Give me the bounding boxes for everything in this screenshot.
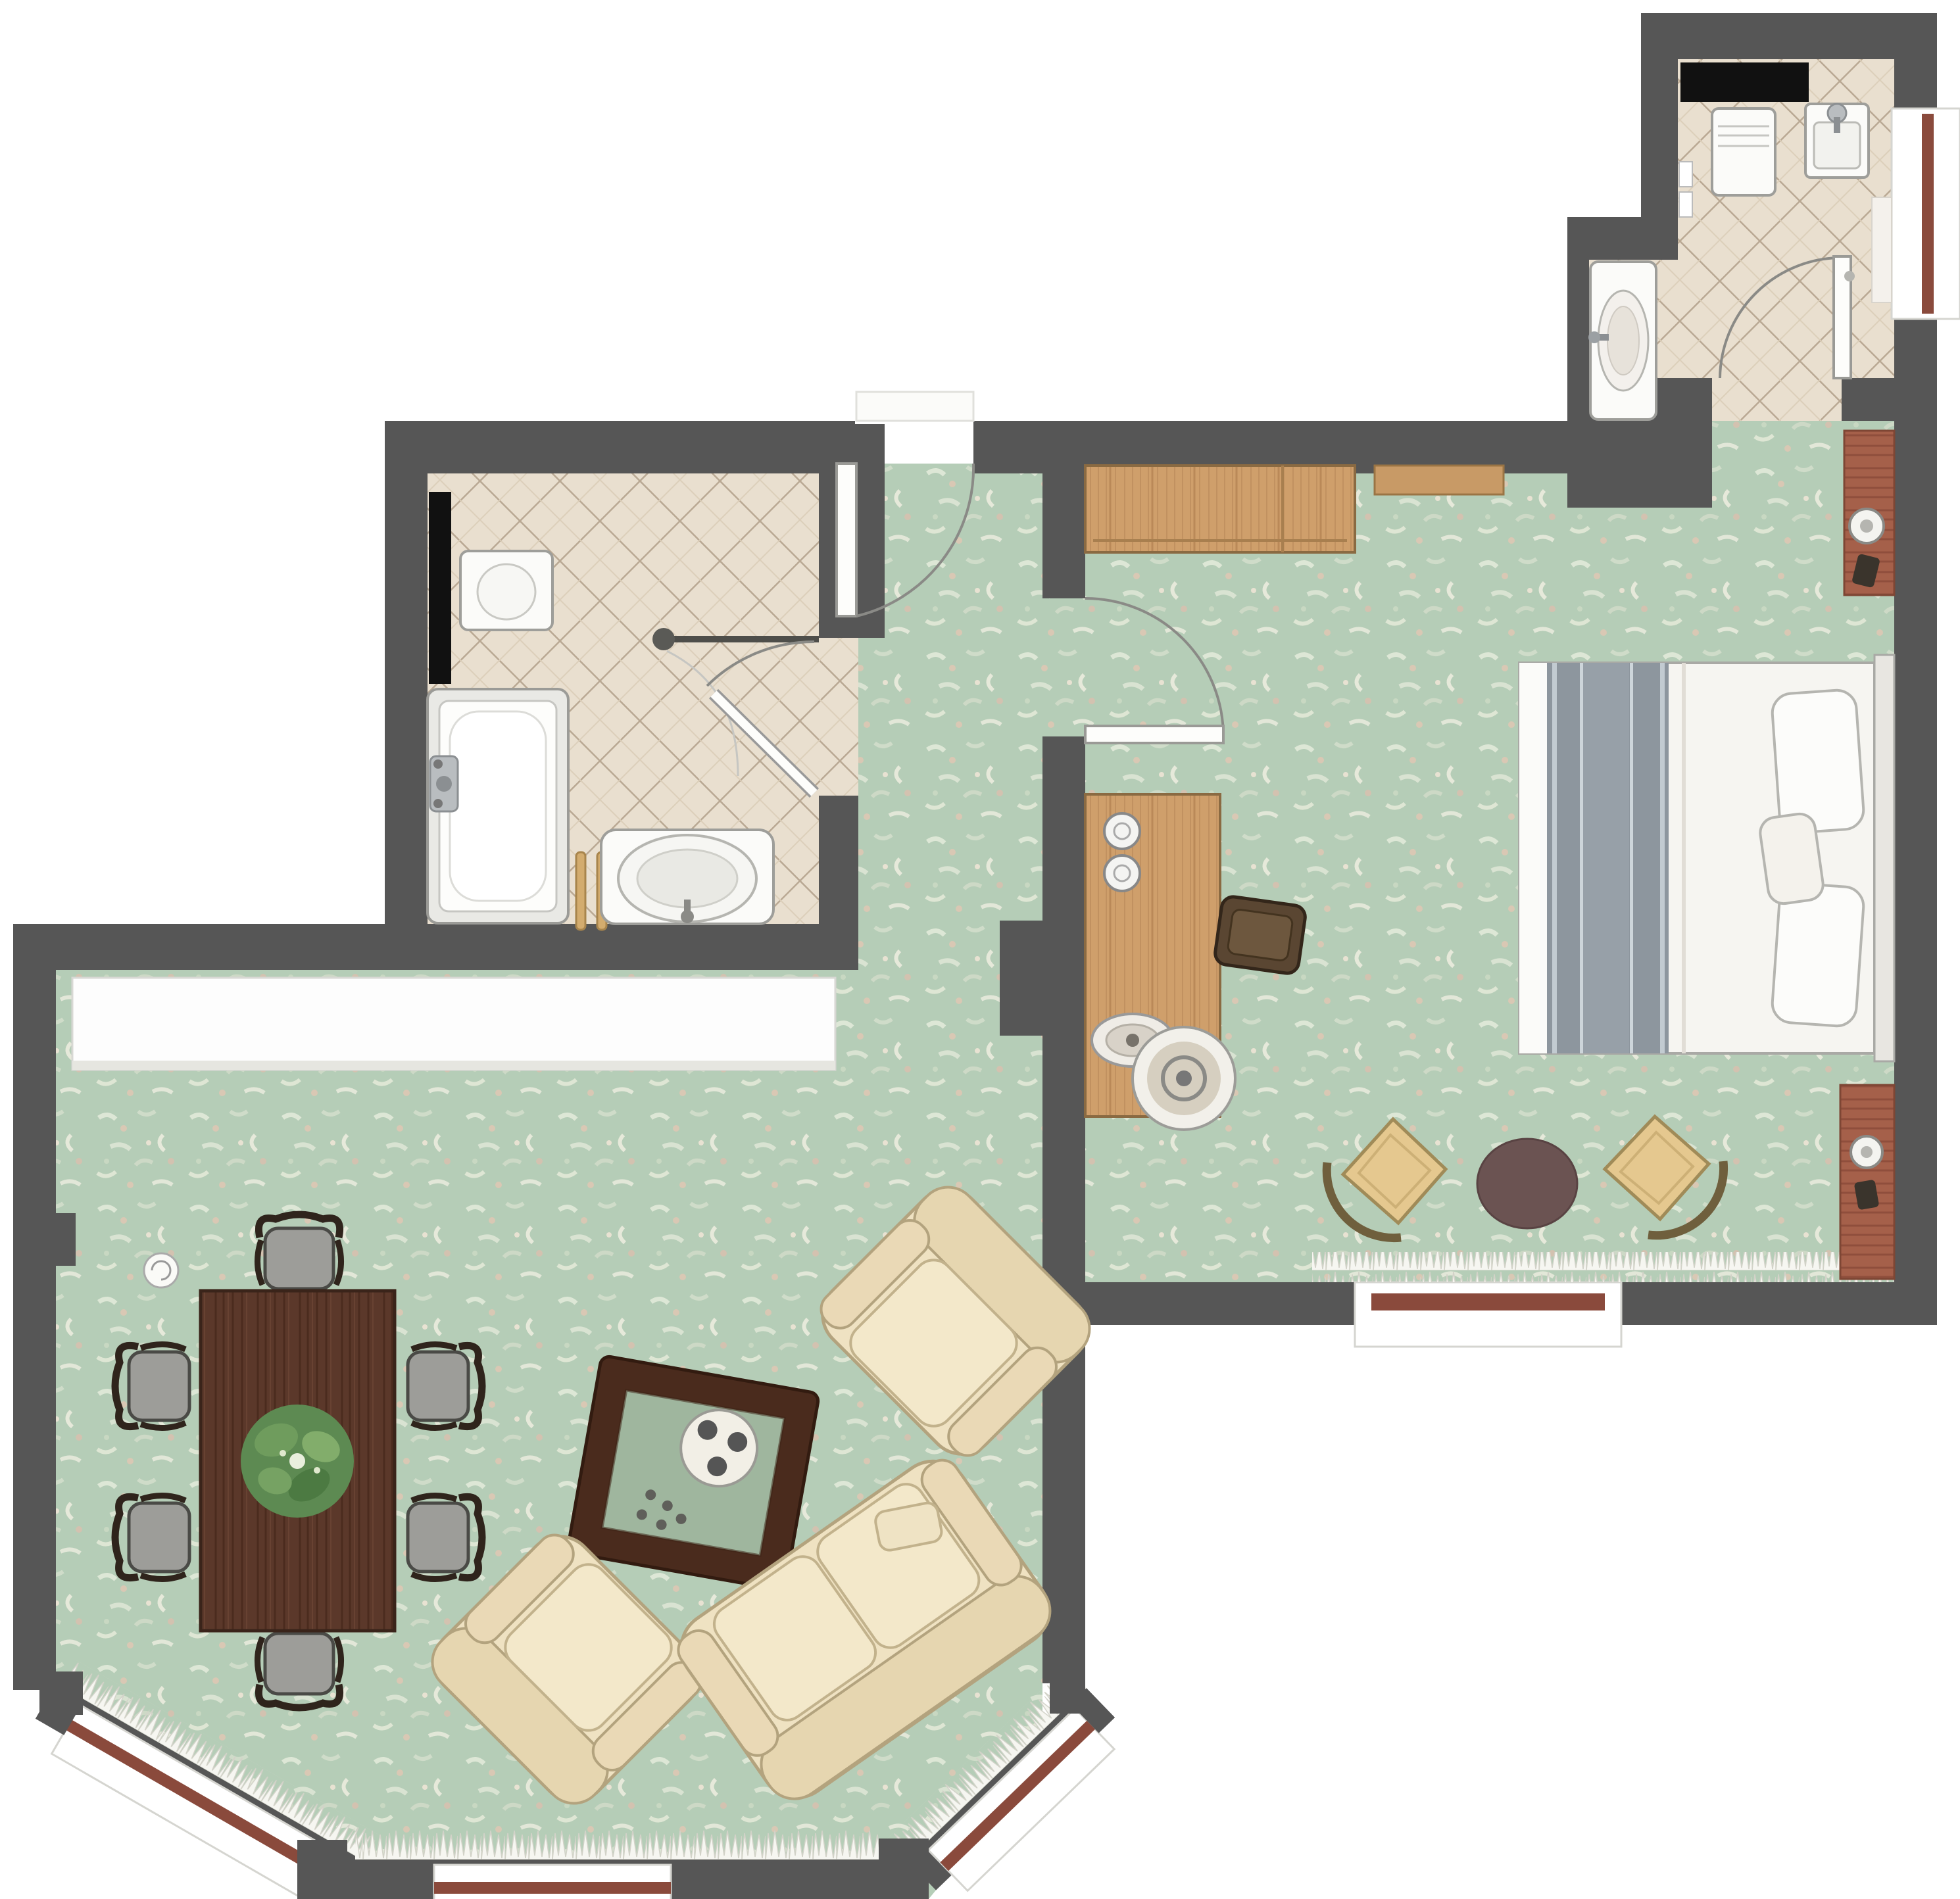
corner-table: [1840, 1085, 1894, 1279]
wardrobe: [1085, 466, 1355, 552]
ensuite-toilet-bidet: [1712, 108, 1775, 195]
ensuite-sink-square: [1805, 104, 1869, 178]
floor-medallion: [144, 1253, 178, 1287]
wall-right: [1894, 319, 1937, 1325]
wall-ensuite-jog: [1567, 217, 1678, 260]
wall-left-pilaster: [56, 1213, 76, 1266]
bedroom-curtain-fringe: [1312, 1252, 1894, 1282]
floor-plan-page: Hotel suite floor plan – top-down view: [0, 0, 1960, 1899]
toilet: [460, 551, 552, 630]
ensuite-black-counter: [1680, 62, 1809, 102]
floor-service-tray: [1133, 1027, 1235, 1130]
bathtub-faucet: [430, 756, 458, 811]
wall-ensuite-top: [1641, 13, 1937, 59]
floor-plan-canvas: Hotel suite floor plan – top-down view: [0, 0, 1960, 1899]
shower-head-icon: [652, 628, 675, 650]
bed-runner: [1547, 663, 1669, 1053]
nightstand: [1844, 431, 1894, 595]
ensuite-floor-doorway: [1712, 378, 1842, 421]
round-side-table: [1477, 1139, 1577, 1228]
headboard: [1874, 655, 1894, 1061]
wall-bathroom-left: [385, 424, 428, 970]
ensuite-window: [1892, 108, 1960, 319]
wall-bedroom-bottom-right: [1605, 1282, 1894, 1325]
bed: [1519, 655, 1894, 1061]
wall-living-pilaster: [1000, 921, 1042, 1036]
ensuite-window-frame: [1922, 114, 1934, 314]
hallway-floor: [858, 464, 1042, 970]
curtain-fringe-bottom: [355, 1829, 881, 1860]
desk-chair: [1213, 896, 1306, 975]
bay-bottom: [316, 1829, 908, 1899]
window-frame-bottom: [434, 1882, 671, 1894]
pedestal-sink: [601, 830, 773, 924]
wall-bedroom-bottom-left: [1085, 1282, 1371, 1325]
wall-ensuite-right-jamb: [1842, 378, 1894, 421]
glass-icon: [1104, 813, 1140, 849]
plant-centerpiece: [241, 1405, 354, 1518]
door-handle-icon: [1844, 271, 1855, 281]
ensuite-sink-oval: [1588, 262, 1656, 420]
bathtub: [428, 689, 568, 923]
wall-bedroom-left-stub: [1042, 464, 1085, 598]
entry-threshold: [856, 392, 973, 421]
glass-icon: [1104, 855, 1140, 891]
wall-living-top: [13, 924, 858, 970]
wall-shelf: [1375, 466, 1504, 494]
wall-top-left: [385, 421, 855, 473]
wall-right-upper: [1894, 13, 1937, 108]
wall-living-left: [13, 924, 56, 1690]
ensuite-side-ledge: [1872, 197, 1892, 302]
console-cabinet: [72, 978, 835, 1070]
bedroom-window-frame: [1371, 1293, 1605, 1310]
ensuite-door-threshold: [1712, 421, 1842, 510]
wall-ensuite-left-lower: [1567, 260, 1589, 378]
bedroom-door-threshold: [1042, 598, 1085, 736]
wall-bedroom-left: [1042, 736, 1085, 1683]
black-counter-strip: [429, 492, 451, 684]
main-bathroom-door-threshold: [819, 638, 858, 796]
coffee-table: [567, 1355, 820, 1591]
